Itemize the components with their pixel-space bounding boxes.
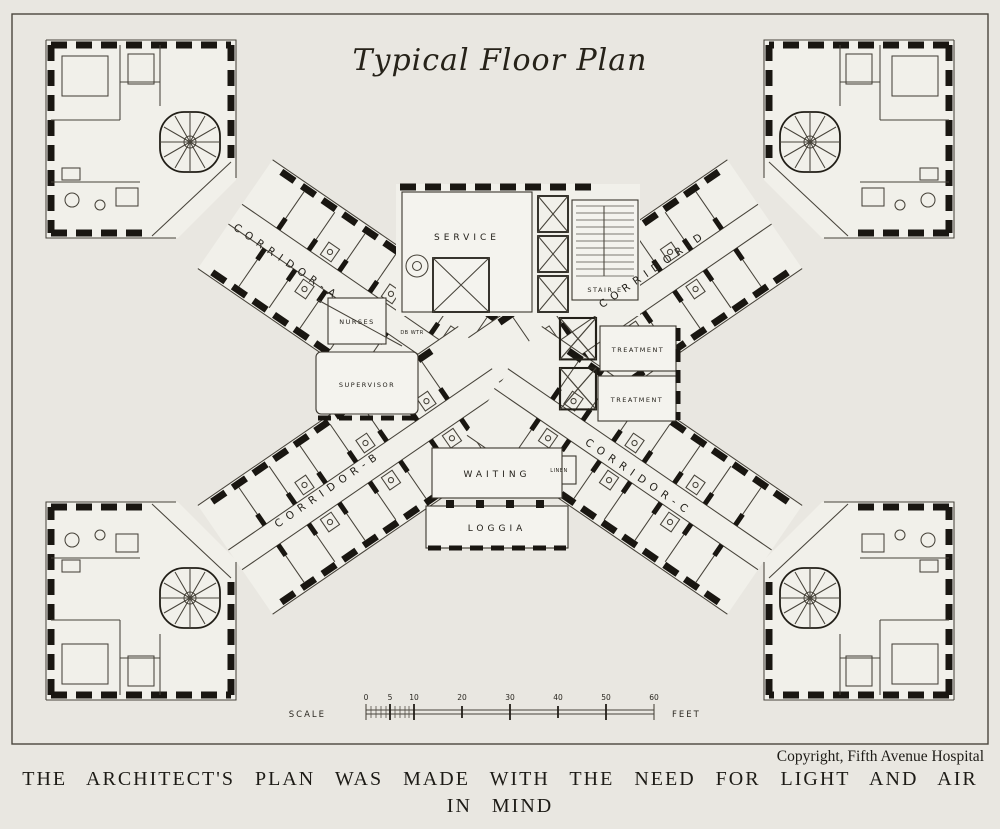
scale-tick: 10	[409, 693, 419, 702]
room-service	[402, 192, 532, 312]
pavilion-top-left	[46, 40, 236, 238]
floor-plan-svg: Typical Floor Plan	[0, 0, 1000, 745]
scale-tick: 40	[553, 693, 563, 702]
scale-tick: 0	[364, 693, 369, 702]
scale-tick: 20	[457, 693, 467, 702]
label-dumbwaiter: DB WTR	[400, 330, 423, 336]
caption-line-1: THE ARCHITECT'S PLAN WAS MADE WITH THE N…	[0, 768, 1000, 791]
label-waiting: WAITING	[463, 470, 530, 480]
scale-bar: SCALE 0 5 10 20 30 40 50 60 FEET	[289, 693, 701, 720]
label-supervisor: SUPERVISOR	[339, 381, 395, 389]
pavilion-top-right	[764, 40, 954, 238]
label-loggia: LOGGIA	[468, 524, 527, 534]
label-nurses: NURSES	[339, 318, 375, 326]
caption-line-2: IN MIND	[0, 795, 1000, 818]
label-service: SERVICE	[434, 233, 500, 243]
scale-tick: 5	[388, 693, 393, 702]
scale-tick: 50	[601, 693, 611, 702]
scale-unit: FEET	[672, 710, 701, 720]
scanned-plate: Typical Floor Plan	[0, 0, 1000, 829]
scale-tick: 30	[505, 693, 515, 702]
scale-tick: 60	[649, 693, 659, 702]
label-treatment-upper: TREATMENT	[611, 346, 665, 354]
label-treatment-lower: TREATMENT	[610, 396, 664, 404]
scale-label: SCALE	[289, 710, 326, 720]
pavilion-bottom-right	[764, 502, 954, 700]
label-linen: LINEN	[550, 468, 567, 474]
copyright-line: Copyright, Fifth Avenue Hospital	[777, 748, 984, 766]
pavilion-bottom-left	[46, 502, 236, 700]
plan-title: Typical Floor Plan	[353, 43, 648, 78]
